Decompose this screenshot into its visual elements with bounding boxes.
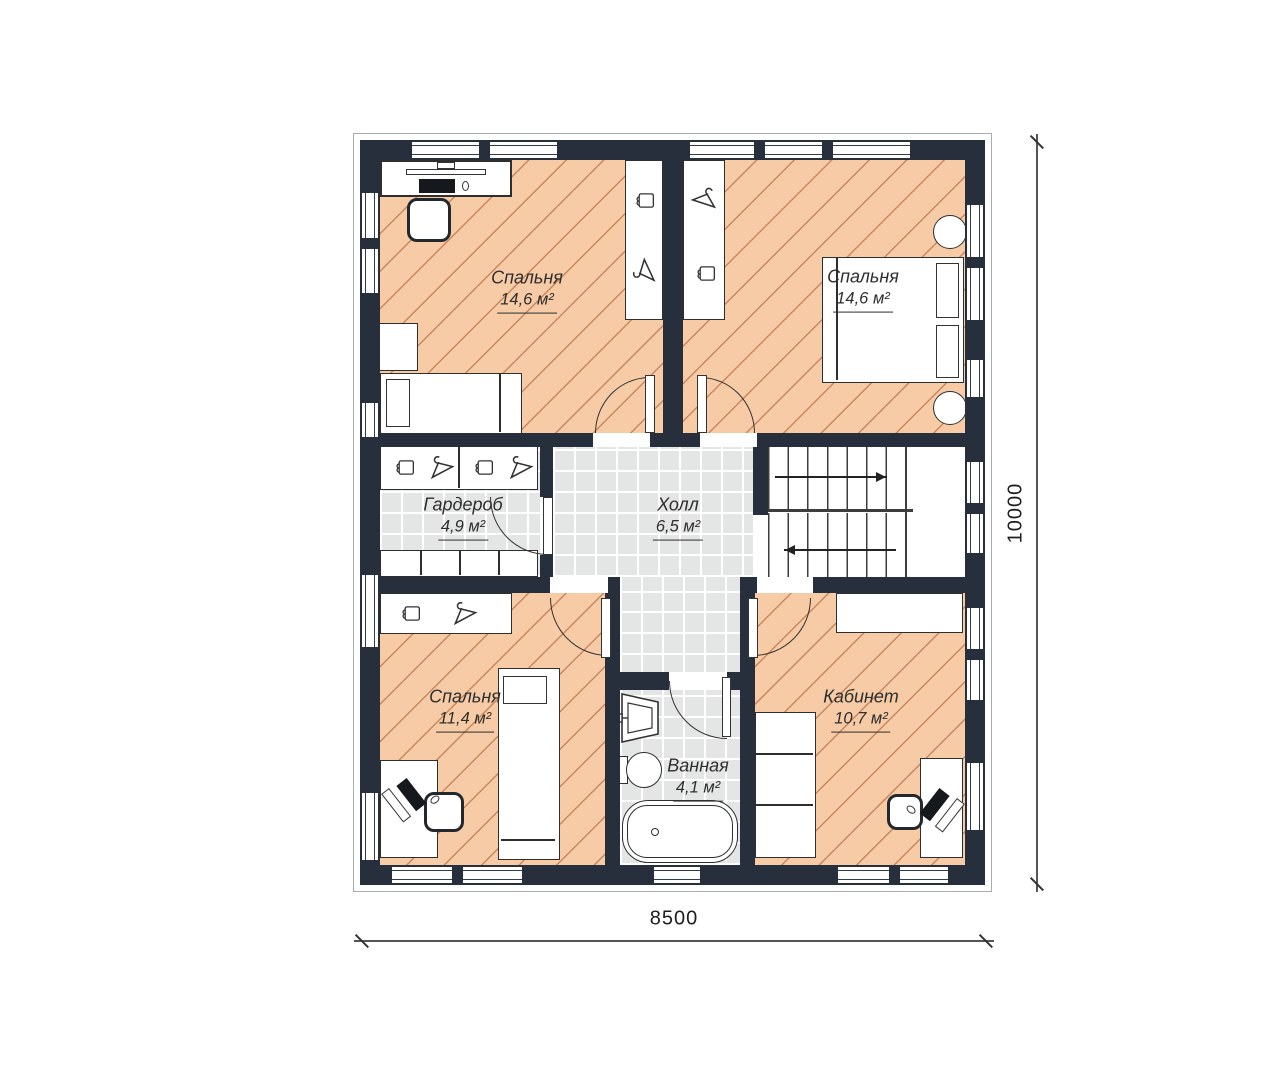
floor-plan: Спальня 14,6 м² Спальня 14,6 м² Гардероб… [360,140,985,885]
window-post [966,503,984,514]
monitor-stand [437,162,455,169]
cabinet-divider [756,804,813,806]
window [838,867,948,883]
shelf-divider [420,551,422,575]
window-post [361,238,379,249]
bathtub-drain [651,828,659,836]
doorway [700,433,757,447]
door-leaf [748,598,758,658]
wall-segment [755,433,965,447]
pillow [386,379,410,427]
shelf-row [380,550,538,577]
window [690,142,910,158]
door-leaf [722,677,731,737]
door-leaf [645,375,655,433]
room-label-hall: Холл 6,5 м² [653,494,703,541]
arrow-right-icon [775,476,887,478]
cabinet-divider [756,753,813,755]
wall-segment [663,160,683,445]
window [412,142,557,158]
unit-divider [458,446,460,488]
bed-single [380,373,522,435]
bed-single [498,668,560,860]
doorway [550,577,608,593]
room-label-bathroom: Ванная 4,1 м² [667,755,728,802]
door-leaf [697,375,707,433]
window [362,575,378,647]
pillow [936,325,959,378]
dimension-label-height: 10000 [1005,483,1028,544]
shelf-divider [498,551,500,575]
closet-left [625,160,663,320]
folded-clothes-icon [694,264,717,283]
folded-clothes-icon [472,458,495,477]
window [967,608,983,700]
closet-right [683,160,725,320]
bathtub-inner [627,805,733,858]
wall-segment [540,555,553,577]
cabinet [755,712,816,858]
corridor-floor [620,577,740,593]
sink-icon [614,690,662,746]
window [967,462,983,553]
bathtub-icon [622,800,738,863]
desk [380,160,512,197]
monitor-icon [406,169,486,175]
hanger-icon [445,596,480,629]
arrow-left-icon [784,549,896,551]
wardrobe-unit [380,593,512,634]
window [362,193,378,293]
folded-clothes-icon [399,604,422,623]
wall-segment [813,577,965,593]
dimension-line-height [1036,134,1038,892]
nightstand [378,323,418,371]
door-leaf [601,598,611,658]
pillow [936,263,959,318]
hanger-icon [689,182,722,212]
stair-mid-line [768,509,913,512]
blanket-line [499,374,501,432]
window-post [966,649,984,660]
blanket-line [501,839,555,841]
keyboard-icon [419,179,455,193]
door-leaf [543,497,553,555]
window [362,793,378,860]
window-post [822,141,833,159]
mouse-icon [462,181,469,191]
room-label-bedroom-top-left: Спальня 14,6 м² [491,267,563,314]
nightstand-round [933,391,967,425]
dimension-line-width [354,940,994,942]
folded-clothes-icon [633,191,656,210]
room-label-bedroom-bottom: Спальня 11,4 м² [429,686,501,733]
wall-segment [753,445,768,515]
office-chair [407,198,451,242]
window-post [966,257,984,268]
wall-segment [740,577,757,593]
wall-segment [620,672,669,690]
wardrobe-unit [380,445,538,490]
window-post [754,141,765,159]
window-post [889,866,900,884]
nightstand-round [933,215,967,249]
window [967,360,983,397]
doorway [593,433,650,447]
shelf-divider [459,551,461,575]
hanger-icon [422,450,457,483]
folded-clothes-icon [393,458,416,477]
window-post [479,141,490,159]
hanger-icon [627,255,659,289]
window [967,763,983,830]
window [392,867,522,883]
window [967,205,983,320]
window [654,867,700,883]
window-post [452,866,463,884]
wall-segment [650,433,700,447]
doorway [757,577,813,593]
room-label-wardrobe: Гардероб 4,9 м² [423,494,502,541]
floor-plan-page: Спальня 14,6 м² Спальня 14,6 м² Гардероб… [0,0,1270,1080]
wall-segment [380,433,593,447]
room-label-office: Кабинет 10,7 м² [823,686,898,733]
shelf [836,593,963,633]
toilet-icon [626,752,662,788]
wall-segment [360,577,550,593]
hanger-icon [501,450,536,483]
stair-landing-edge [905,445,907,577]
dimension-label-width: 8500 [650,908,699,931]
wall-segment [540,445,553,497]
pillow [503,676,547,704]
room-label-bedroom-top-right: Спальня 14,6 м² [827,266,899,313]
window [362,403,378,437]
